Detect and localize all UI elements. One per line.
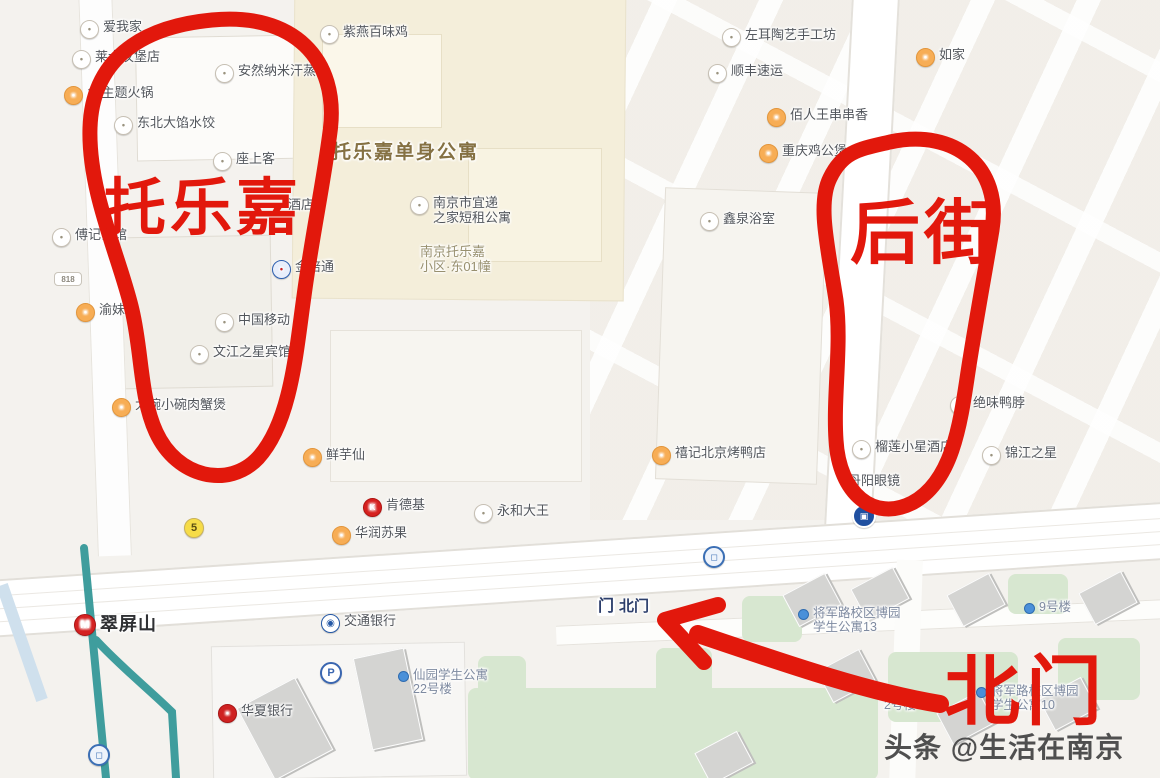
generic-icon: • — [708, 64, 727, 83]
generic-icon: • — [474, 504, 493, 523]
kfc-icon: K — [363, 498, 382, 517]
generic-icon: • — [320, 25, 339, 44]
generic-icon: • — [114, 116, 133, 135]
poi-juewei-duck-neck[interactable]: •绝味鸭脖 — [950, 396, 1025, 415]
poi-xinquan-bath[interactable]: •鑫泉浴室 — [700, 212, 775, 231]
generic-icon: • — [213, 152, 232, 171]
poi-dongbei-dumplings[interactable]: •东北大馅水饺 — [114, 116, 215, 135]
poi-theme-hotpot-18[interactable]: •18主题火锅 — [64, 86, 153, 105]
poi-label: 华润苏果 — [355, 526, 407, 541]
poi-china-mobile[interactable]: •中国移动 — [215, 313, 290, 332]
food-icon: • — [767, 108, 786, 127]
poi-label: 莱士汉堡店 — [95, 50, 160, 65]
poi-jinbeitong[interactable]: •金倍通 — [272, 260, 334, 279]
generic-icon: • — [52, 228, 71, 247]
poi-bocom-bank[interactable]: ◉交通银行 — [321, 614, 396, 633]
food-icon: • — [64, 86, 83, 105]
poi-label: 交通银行 — [344, 614, 396, 629]
poi-building-2[interactable]: 2号楼 — [884, 698, 916, 712]
poi-wenjiang-hotel[interactable]: •文江之星宾馆 — [190, 345, 291, 364]
poi-sf-express[interactable]: •顺丰速运 — [708, 64, 783, 83]
generic-icon: • — [700, 212, 719, 231]
poi-label: 重庆鸡公煲 — [782, 144, 847, 159]
dot-icon — [1024, 603, 1035, 614]
poi-label: 傅记饭馆 — [75, 228, 127, 243]
poi-label: 酒店 — [288, 198, 314, 213]
poi-label: 紫燕百味鸡 — [343, 25, 408, 40]
poi-label: 鑫泉浴室 — [723, 212, 775, 227]
gate-icon: 门 — [597, 598, 615, 616]
generic-icon: • — [982, 446, 1001, 465]
poi-label: 永和大王 — [497, 504, 549, 519]
poi-label: 仙园学生公寓22号楼 — [413, 668, 488, 697]
blue-icon: • — [272, 260, 291, 279]
poi-tuolejia-apartment[interactable]: 托乐嘉单身公寓 — [332, 142, 479, 164]
poi-label: 金倍通 — [295, 260, 334, 275]
dot-icon — [398, 671, 409, 682]
poi-label: 丹阳眼镜 — [848, 474, 900, 489]
poi-label: 安然纳米汗蒸馆 — [238, 64, 329, 79]
poi-label: 华夏银行 — [241, 704, 293, 719]
poi-label: 翠屏山 — [100, 614, 157, 635]
watermark: 头条 @生活在南京 — [884, 726, 1124, 766]
food-icon: • — [303, 448, 322, 467]
poi-yumeier[interactable]: •渝妹儿 — [76, 303, 138, 322]
poi-label: 18主题火锅 — [87, 86, 153, 101]
poi-jinjiang-inn[interactable]: •锦江之星 — [982, 446, 1057, 465]
poi-label: 肯德基 — [386, 498, 425, 513]
poi-kfc[interactable]: K肯德基 — [363, 498, 425, 517]
poi-hotel-partial[interactable]: 酒店 — [288, 198, 314, 213]
bus-stop-icon[interactable]: ▣ — [852, 504, 876, 528]
poi-aiwojia[interactable]: •爱我家 — [80, 20, 142, 39]
metro-icon: M — [74, 614, 96, 636]
poi-huaxia-bank[interactable]: •华夏银行 — [218, 704, 293, 723]
poi-label: 南京市宜递之家短租公寓 — [433, 196, 511, 226]
generic-icon: • — [852, 440, 871, 459]
poi-label: 爱我家 — [103, 20, 142, 35]
poi-zuoshangke[interactable]: •座上客 — [213, 152, 275, 171]
generic-icon: • — [722, 28, 741, 47]
poi-label: 佰人王串串香 — [790, 108, 868, 123]
metro-entrance-b-icon[interactable]: ◻ — [88, 744, 110, 766]
poi-label: 北门 — [619, 598, 649, 615]
poi-tuolejia-community[interactable]: 南京托乐嘉小区·东01幢 — [420, 245, 491, 275]
poi-huarun-sugo[interactable]: •华润苏果 — [332, 526, 407, 545]
dot-icon — [976, 687, 987, 698]
generic-icon: • — [190, 345, 209, 364]
poi-label: 托乐嘉单身公寓 — [332, 142, 479, 164]
poi-label: 座上客 — [236, 152, 275, 167]
road-badge-818-icon[interactable]: 818 — [54, 272, 82, 286]
parking-icon[interactable]: P — [320, 662, 342, 684]
poi-beijing-duck[interactable]: •禧记北京烤鸭店 — [652, 446, 766, 465]
generic-icon: • — [80, 20, 99, 39]
generic-icon: • — [215, 313, 234, 332]
poi-label: 禧记北京烤鸭店 — [675, 446, 766, 461]
food-icon: • — [76, 303, 95, 322]
bocom-icon: ◉ — [321, 614, 340, 633]
generic-icon: • — [215, 64, 234, 83]
poi-bairenwang[interactable]: •佰人王串串香 — [767, 108, 868, 127]
poi-label: 榴莲小星酒店 — [875, 440, 953, 455]
poi-label: 鲜芋仙 — [326, 448, 365, 463]
poi-label: 渝妹儿 — [99, 303, 138, 318]
poi-durian-hotel[interactable]: •榴莲小星酒店 — [852, 440, 953, 459]
poi-zuoer-pottery[interactable]: •左耳陶艺手工坊 — [722, 28, 836, 47]
poi-label: 2号楼 — [884, 698, 916, 712]
poi-label: 中国移动 — [238, 313, 290, 328]
poi-building-9[interactable]: 9号楼 — [1024, 600, 1071, 614]
poi-danyang-glasses[interactable]: 丹阳眼镜 — [848, 474, 900, 489]
huaxia-icon: • — [218, 704, 237, 723]
generic-icon: • — [950, 396, 969, 415]
food-icon: • — [112, 398, 131, 417]
poi-label: 顺丰速运 — [731, 64, 783, 79]
poi-label: 9号楼 — [1039, 600, 1071, 614]
poi-hualaishi-burger[interactable]: •莱士汉堡店 — [72, 50, 160, 69]
generic-icon: • — [410, 196, 429, 215]
metro-entrance-a-icon[interactable]: ◻ — [703, 546, 725, 568]
food-icon: • — [759, 144, 778, 163]
poi-boyuan-dorm-10[interactable]: 将军路校区博园学生公寓10 — [976, 684, 1079, 713]
generic-icon: • — [72, 50, 91, 69]
poi-ziyan-baiweiji[interactable]: •紫燕百味鸡 — [320, 25, 408, 44]
road-badge-5-icon[interactable]: 5 — [184, 518, 204, 538]
poi-boyuan-dorm-13[interactable]: 将军路校区博园学生公寓13 — [798, 606, 901, 635]
poi-rou-crab-pot[interactable]: •大碗小碗肉蟹煲 — [112, 398, 226, 417]
dot-icon — [798, 609, 809, 620]
poi-label: 锦江之星 — [1005, 446, 1057, 461]
poi-label: 将军路校区博园学生公寓13 — [813, 606, 901, 635]
water-channel — [2, 585, 42, 700]
poi-label: 东北大馅水饺 — [137, 116, 215, 131]
poi-fuji-restaurant[interactable]: •傅记饭馆 — [52, 228, 127, 247]
poi-cuipingshan-station[interactable]: M翠屏山 — [74, 614, 157, 636]
poi-north-gate[interactable]: 门北门 — [597, 598, 649, 616]
poi-yonghe-king[interactable]: •永和大王 — [474, 504, 549, 523]
poi-xianyuan-dorm-22[interactable]: 仙园学生公寓22号楼 — [398, 668, 488, 697]
poi-label: 绝味鸭脖 — [973, 396, 1025, 411]
food-icon: • — [916, 48, 935, 67]
poi-rujia-inn[interactable]: •如家 — [916, 48, 965, 67]
food-icon: • — [652, 446, 671, 465]
poi-label: 将军路校区博园学生公寓10 — [991, 684, 1079, 713]
poi-yidi-apartment[interactable]: •南京市宜递之家短租公寓 — [410, 196, 511, 226]
poi-xianyuxian[interactable]: •鲜芋仙 — [303, 448, 365, 467]
poi-chongqing-jigongbao[interactable]: •重庆鸡公煲 — [759, 144, 847, 163]
poi-label: 左耳陶艺手工坊 — [745, 28, 836, 43]
poi-label: 文江之星宾馆 — [213, 345, 291, 360]
poi-anran-sauna[interactable]: •安然纳米汗蒸馆 — [215, 64, 329, 83]
food-icon: • — [332, 526, 351, 545]
poi-label: 南京托乐嘉小区·东01幢 — [420, 245, 491, 275]
poi-label: 大碗小碗肉蟹煲 — [135, 398, 226, 413]
map-canvas[interactable]: •爱我家•莱士汉堡店•18主题火锅•东北大馅水饺•紫燕百味鸡•安然纳米汗蒸馆•座… — [0, 0, 1160, 778]
poi-label: 如家 — [939, 48, 965, 63]
